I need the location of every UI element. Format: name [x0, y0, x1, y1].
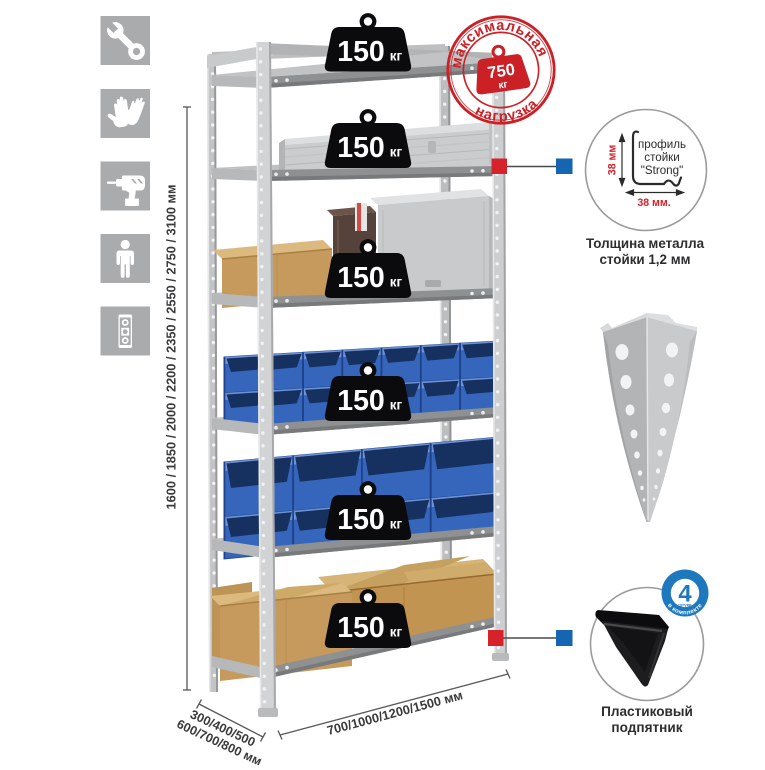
svg-text:кг: кг — [390, 275, 403, 290]
svg-text:"Strong": "Strong" — [641, 164, 683, 177]
svg-text:150: 150 — [337, 504, 385, 536]
svg-text:Пластиковый: Пластиковый — [601, 704, 693, 719]
svg-text:150: 150 — [337, 612, 385, 644]
svg-text:150: 150 — [337, 385, 385, 417]
svg-text:кг: кг — [390, 49, 403, 64]
svg-text:750: 750 — [486, 61, 516, 83]
svg-text:кг: кг — [390, 145, 403, 160]
svg-text:стойки: стойки — [644, 151, 679, 164]
svg-text:кг: кг — [390, 398, 403, 413]
svg-text:штуки: штуки — [678, 603, 692, 608]
svg-text:150: 150 — [337, 262, 385, 294]
svg-text:кг: кг — [390, 517, 403, 532]
svg-text:38 мм.: 38 мм. — [637, 197, 670, 209]
svg-text:подпятник: подпятник — [611, 720, 682, 735]
svg-text:кг: кг — [390, 625, 403, 640]
svg-text:150: 150 — [337, 36, 385, 68]
svg-text:1600 / 1850 / 2000 / 2200 / 23: 1600 / 1850 / 2000 / 2200 / 2350 / 2550 … — [164, 185, 179, 510]
svg-text:Толщина металла: Толщина металла — [586, 236, 705, 251]
svg-text:стойки 1,2 мм: стойки 1,2 мм — [599, 252, 690, 267]
svg-text:150: 150 — [337, 132, 385, 164]
svg-text:38 мм: 38 мм — [607, 145, 619, 176]
svg-text:кг: кг — [498, 79, 509, 91]
svg-text:профиль: профиль — [638, 138, 686, 151]
